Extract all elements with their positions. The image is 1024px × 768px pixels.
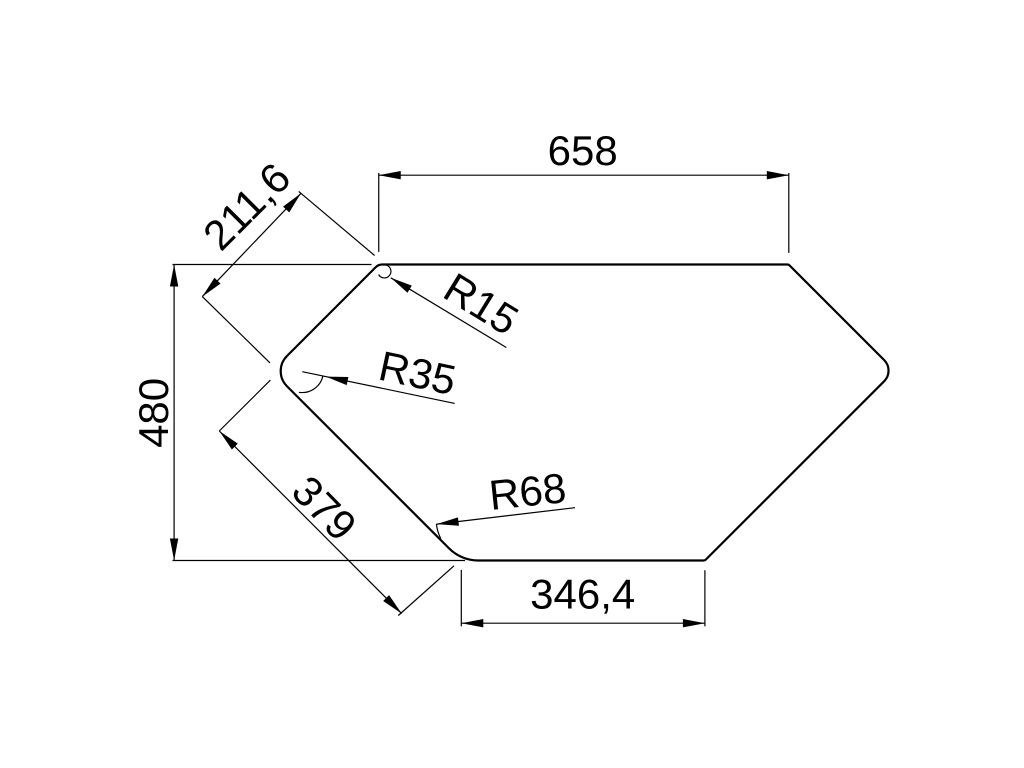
svg-text:R35: R35 xyxy=(375,342,460,404)
svg-text:480: 480 xyxy=(130,378,177,448)
svg-text:R68: R68 xyxy=(487,464,569,519)
svg-text:346,4: 346,4 xyxy=(530,570,635,617)
svg-text:379: 379 xyxy=(283,467,366,550)
svg-text:658: 658 xyxy=(548,127,618,174)
